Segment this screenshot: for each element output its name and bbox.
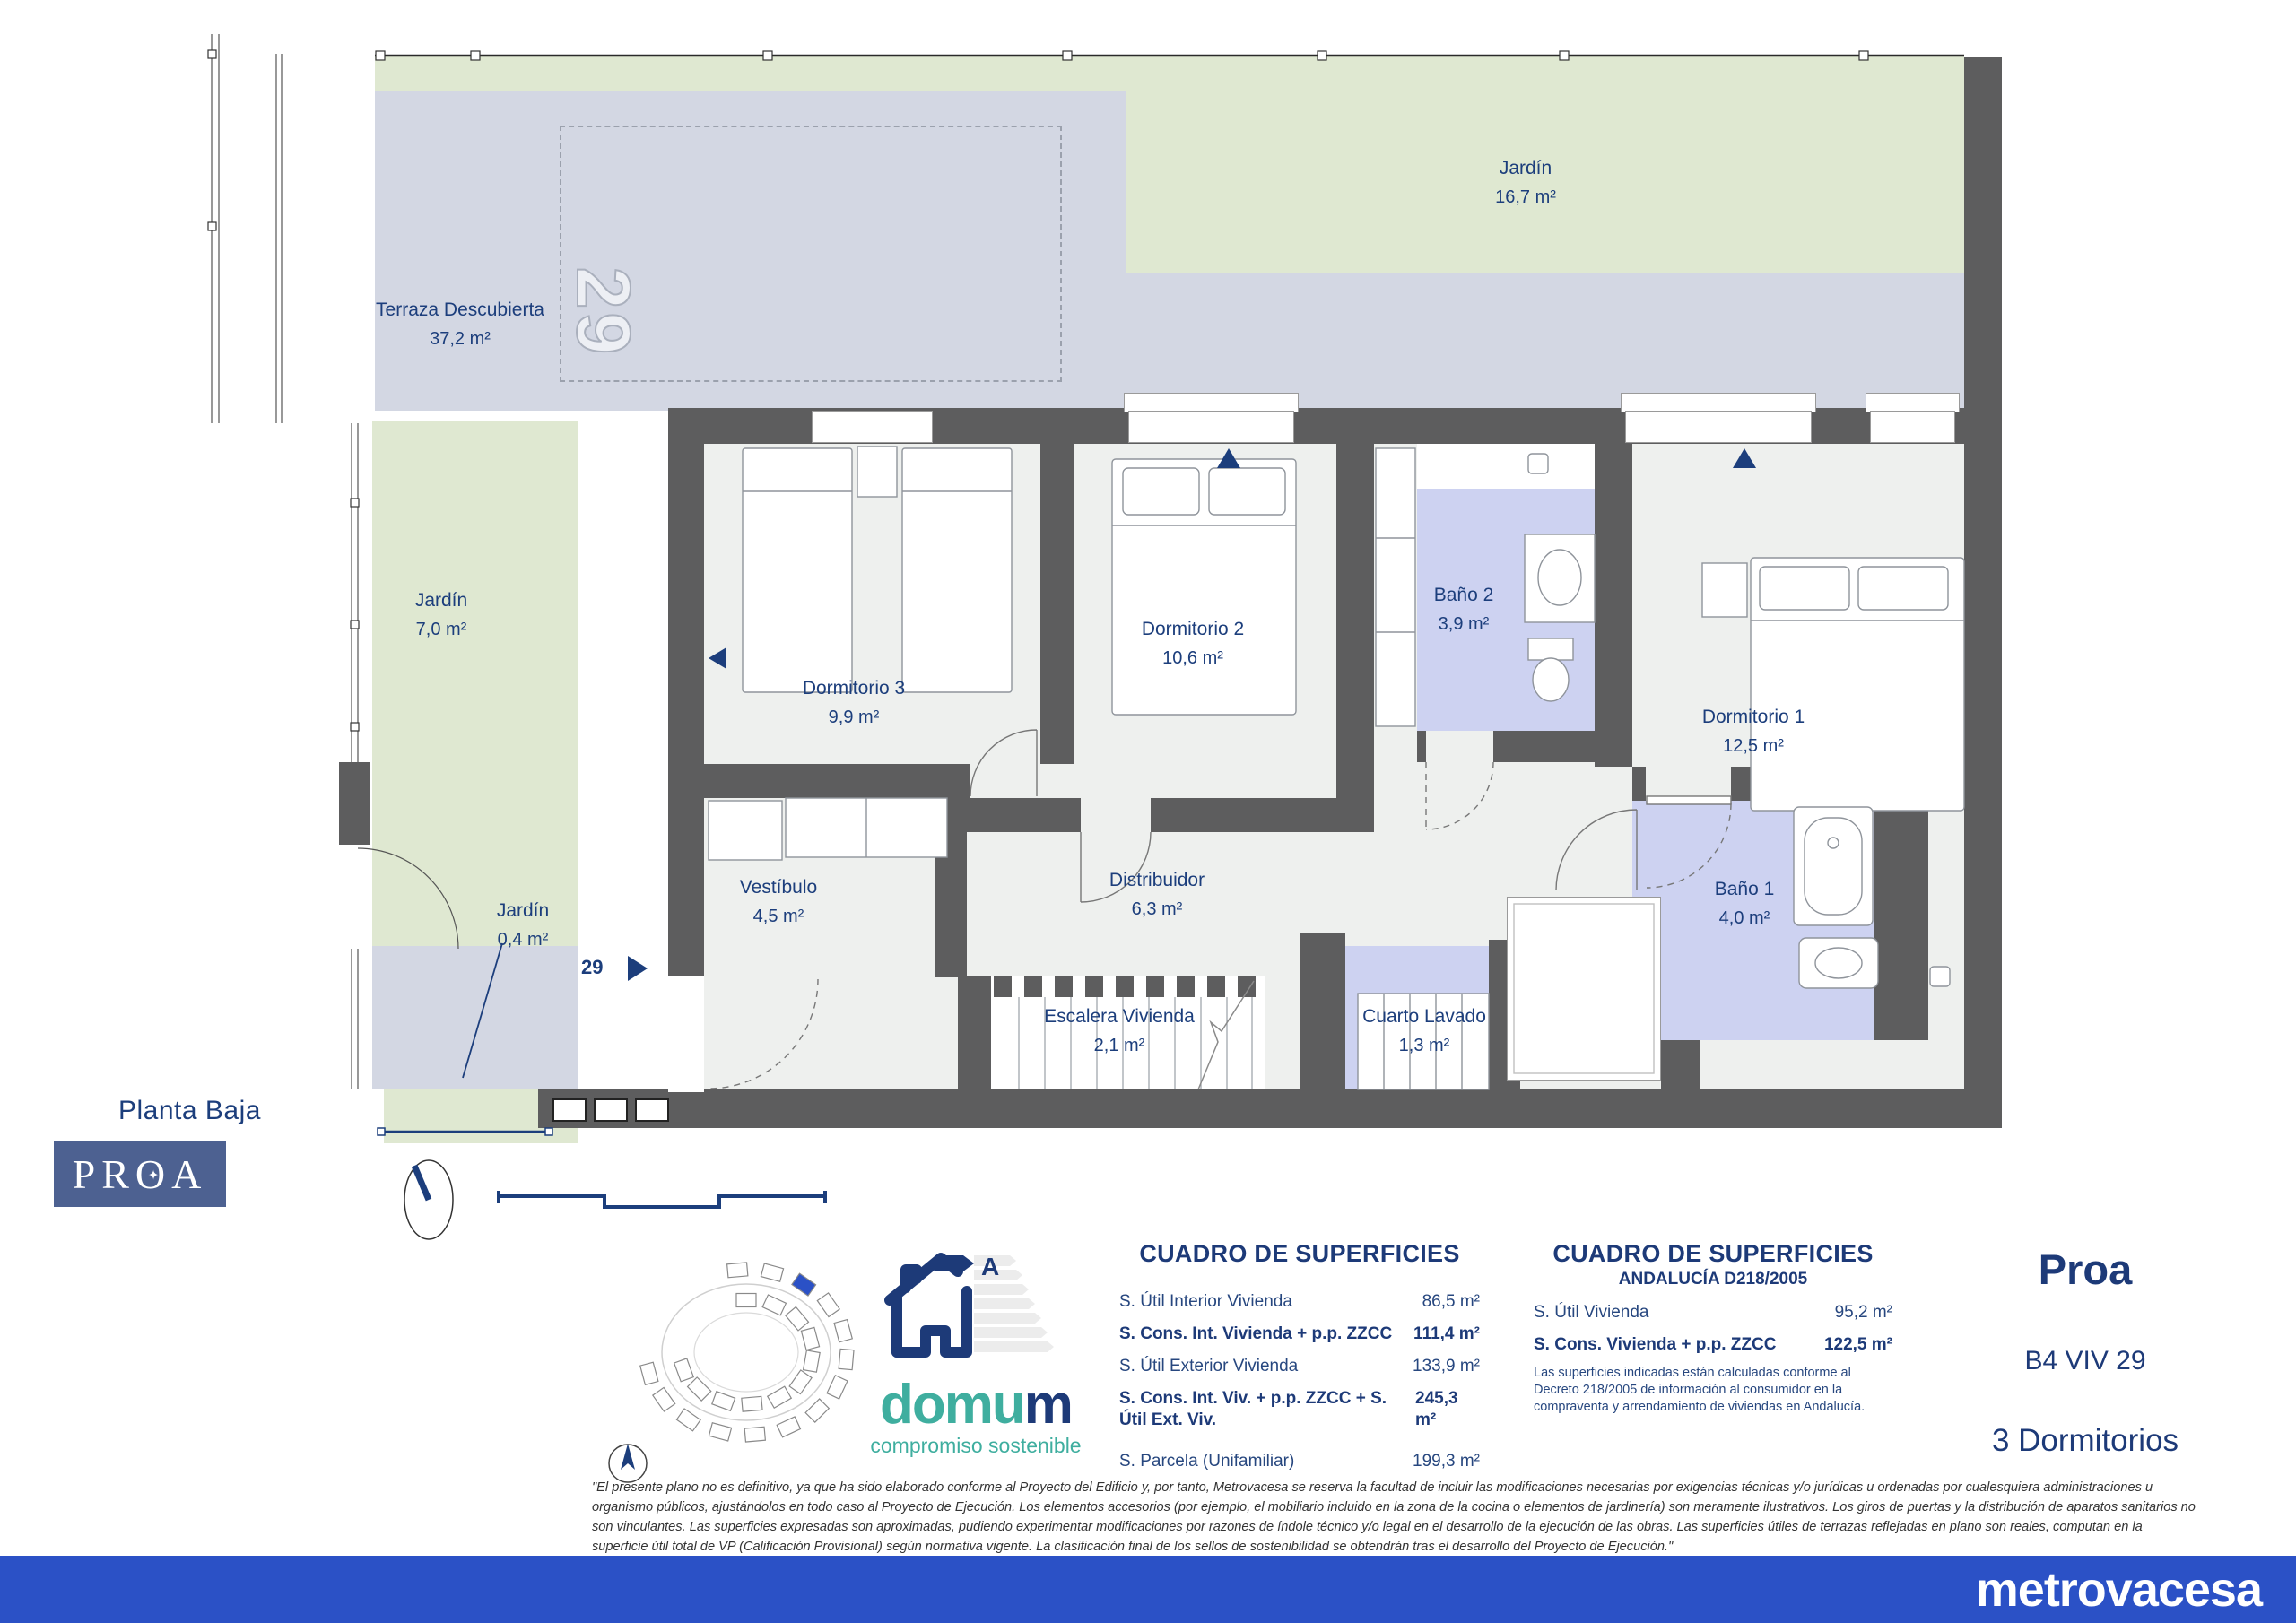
floor-label: Planta Baja [118, 1096, 261, 1126]
site-minimap [609, 1263, 854, 1482]
minimap-house [786, 1306, 809, 1330]
house-outline [890, 1258, 967, 1352]
table-note: Las superficies indicadas están calculad… [1534, 1365, 1892, 1416]
row-value: 133,9 m² [1413, 1356, 1480, 1377]
development-name: Proa [1946, 1245, 2224, 1294]
minimap-house [761, 1263, 783, 1281]
room-area: 4,0 m² [1715, 904, 1775, 933]
room-label-jardin-left: Jardín 7,0 m² [415, 586, 467, 644]
row-value: 86,5 m² [1422, 1291, 1480, 1313]
room-area: 0,4 m² [497, 925, 549, 954]
door-swings [709, 730, 1731, 1089]
disclaimer-line: son vinculantes. Las superficies expresa… [592, 1517, 2278, 1537]
disclaimer: "El presente plano no es definitivo, ya … [592, 1478, 2278, 1557]
table-row: S. Útil Interior Vivienda 86,5 m² [1119, 1291, 1480, 1313]
room-label-bano2: Baño 2 3,9 m² [1434, 581, 1494, 638]
room-name: Terraza Descubierta [376, 296, 544, 325]
minimap-unit-highlighted [792, 1273, 816, 1296]
room-name: Baño 2 [1434, 581, 1494, 610]
measure-line [378, 1128, 552, 1135]
table-row: S. Parcela (Unifamiliar) 199,3 m² [1119, 1451, 1480, 1472]
room-label-terraza: Terraza Descubierta 37,2 m² [376, 296, 544, 353]
room-label-bano1: Baño 1 4,0 m² [1715, 875, 1775, 933]
table-title: CUADRO DE SUPERFICIES [1534, 1240, 1892, 1268]
room-area: 7,0 m² [415, 615, 467, 644]
minimap-house [801, 1327, 819, 1350]
domum-house-icon: A [868, 1245, 1092, 1370]
minimap-house [736, 1294, 756, 1307]
compass-star-icon: ✦ [148, 1167, 160, 1185]
row-label: S. Útil Exterior Vivienda [1119, 1356, 1298, 1377]
domum-text-teal: domu [880, 1374, 1024, 1436]
room-name: Dormitorio 1 [1702, 703, 1805, 732]
room-name: Vestíbulo [740, 873, 817, 902]
room-label-jardin-top: Jardín 16,7 m² [1495, 154, 1556, 212]
proa-logo-text: PR [73, 1150, 135, 1198]
proa-logo: PRO✦A [54, 1141, 226, 1207]
row-label: S. Parcela (Unifamiliar) [1119, 1451, 1294, 1472]
room-area: 16,7 m² [1495, 183, 1556, 212]
proa-logo-text: A [171, 1150, 207, 1198]
domum-wordmark: domum [850, 1378, 1101, 1432]
room-name: Dormitorio 2 [1142, 615, 1244, 644]
surfaces-table-2: CUADRO DE SUPERFICIES ANDALUCÍA D218/200… [1534, 1240, 1892, 1416]
table-row: S. Cons. Vivienda + p.p. ZZCC 122,5 m² [1534, 1334, 1892, 1356]
row-value: 245,3 m² [1415, 1388, 1480, 1431]
disclaimer-line: organismo públicos, ajustándolos en todo… [592, 1497, 2278, 1517]
minimap-house [742, 1396, 762, 1411]
room-area: 3,9 m² [1434, 610, 1494, 638]
minimap-house [768, 1386, 792, 1408]
minimap-house [805, 1399, 829, 1422]
room-name: Baño 1 [1715, 875, 1775, 904]
row-label: S. Cons. Vivienda + p.p. ZZCC [1534, 1334, 1776, 1356]
site-boundary-fence [208, 34, 458, 1089]
disclaimer-line: "El presente plano no es definitivo, ya … [592, 1478, 2278, 1497]
row-value: 111,4 m² [1413, 1324, 1480, 1345]
minimap-house [817, 1293, 839, 1317]
room-label-cuarto-lavado: Cuarto Lavado 1,3 m² [1362, 1002, 1486, 1060]
footer-bar: metrovacesa [0, 1556, 2296, 1623]
energy-letter: A [981, 1253, 999, 1280]
energy-arrow-icon [935, 1255, 974, 1271]
row-value: 95,2 m² [1835, 1302, 1892, 1324]
room-area: 10,6 m² [1142, 644, 1244, 673]
row-value: 199,3 m² [1413, 1451, 1480, 1472]
room-area: 6,3 m² [1109, 895, 1205, 924]
disclaimer-line: superficie útil total de VP (Calificació… [592, 1537, 2278, 1557]
minimap-house [744, 1427, 765, 1442]
minimap-house [727, 1263, 748, 1278]
table-subtitle: ANDALUCÍA D218/2005 [1534, 1270, 1892, 1289]
minimap-house [804, 1350, 821, 1372]
minimap-house [688, 1377, 711, 1401]
row-label: S. Útil Interior Vivienda [1119, 1291, 1292, 1313]
room-label-distribuidor: Distribuidor 6,3 m² [1109, 866, 1205, 924]
table-title: CUADRO DE SUPERFICIES [1119, 1240, 1480, 1268]
minimap-house [653, 1387, 675, 1411]
minimap-house [777, 1417, 800, 1437]
minimap-house [640, 1362, 658, 1384]
row-value: 122,5 m² [1824, 1334, 1892, 1356]
metrovacesa-logo: metrovacesa [1976, 1562, 2262, 1618]
room-area: 37,2 m² [376, 325, 544, 353]
domum-text-blue: m [1024, 1374, 1072, 1436]
room-name: Jardín [415, 586, 467, 615]
bedroom-count: 3 Dormitorios [1946, 1423, 2224, 1459]
wall-vents [553, 1099, 668, 1121]
floorplan-page: 29 [0, 0, 2296, 1623]
table-row: S. Útil Vivienda 95,2 m² [1534, 1302, 1892, 1324]
room-name: Escalera Vivienda [1044, 1002, 1195, 1031]
room-label-vestibulo: Vestíbulo 4,5 m² [740, 873, 817, 931]
room-label-dormitorio1: Dormitorio 1 12,5 m² [1702, 703, 1805, 760]
room-area: 9,9 m² [803, 703, 905, 732]
room-area: 1,3 m² [1362, 1031, 1486, 1060]
room-name: Jardín [1495, 154, 1556, 183]
table-row: S. Cons. Int. Vivienda + p.p. ZZCC 111,4… [1119, 1324, 1480, 1345]
minimap-house [712, 1392, 735, 1411]
unit-marker: 29 [581, 956, 603, 979]
room-area: 12,5 m² [1702, 732, 1805, 760]
room-area: 2,1 m² [1044, 1031, 1195, 1060]
table-row: S. Cons. Int. Viv. + p.p. ZZCC + S. Útil… [1119, 1388, 1480, 1431]
row-label: S. Cons. Int. Vivienda + p.p. ZZCC [1119, 1324, 1392, 1345]
room-label-escalera: Escalera Vivienda 2,1 m² [1044, 1002, 1195, 1060]
row-label: S. Cons. Int. Viv. + p.p. ZZCC + S. Útil… [1119, 1388, 1415, 1431]
minimap-house [827, 1376, 848, 1399]
leader-line [463, 943, 502, 1078]
room-label-jardin-small: Jardín 0,4 m² [497, 897, 549, 954]
domum-logo: A domum compromiso sostenible [850, 1245, 1101, 1458]
domum-tagline: compromiso sostenible [850, 1434, 1101, 1458]
minimap-house [676, 1409, 700, 1431]
room-name: Cuarto Lavado [1362, 1002, 1486, 1031]
proa-logo-o: O✦ [135, 1150, 171, 1198]
compass-icon [404, 1160, 453, 1239]
minimap-house [709, 1423, 731, 1441]
room-label-dormitorio3: Dormitorio 3 9,9 m² [803, 674, 905, 732]
scale-bar [499, 1191, 825, 1207]
minimap-house [674, 1358, 694, 1382]
room-name: Distribuidor [1109, 866, 1205, 895]
table-row: S. Útil Exterior Vivienda 133,9 m² [1119, 1356, 1480, 1377]
row-label: S. Útil Vivienda [1534, 1302, 1649, 1324]
room-area: 4,5 m² [740, 902, 817, 931]
room-name: Dormitorio 3 [803, 674, 905, 703]
minimap-house [789, 1370, 812, 1394]
surfaces-table-1: CUADRO DE SUPERFICIES S. Útil Interior V… [1119, 1240, 1480, 1472]
room-name: Jardín [497, 897, 549, 925]
furniture [709, 447, 1964, 1089]
survey-line-top [375, 51, 1964, 60]
unit-info-block: Proa B4 VIV 29 3 Dormitorios [1946, 1245, 2224, 1459]
room-label-dormitorio2: Dormitorio 2 10,6 m² [1142, 615, 1244, 673]
minimap-house [762, 1295, 786, 1315]
unit-code: B4 VIV 29 [1946, 1346, 2224, 1376]
